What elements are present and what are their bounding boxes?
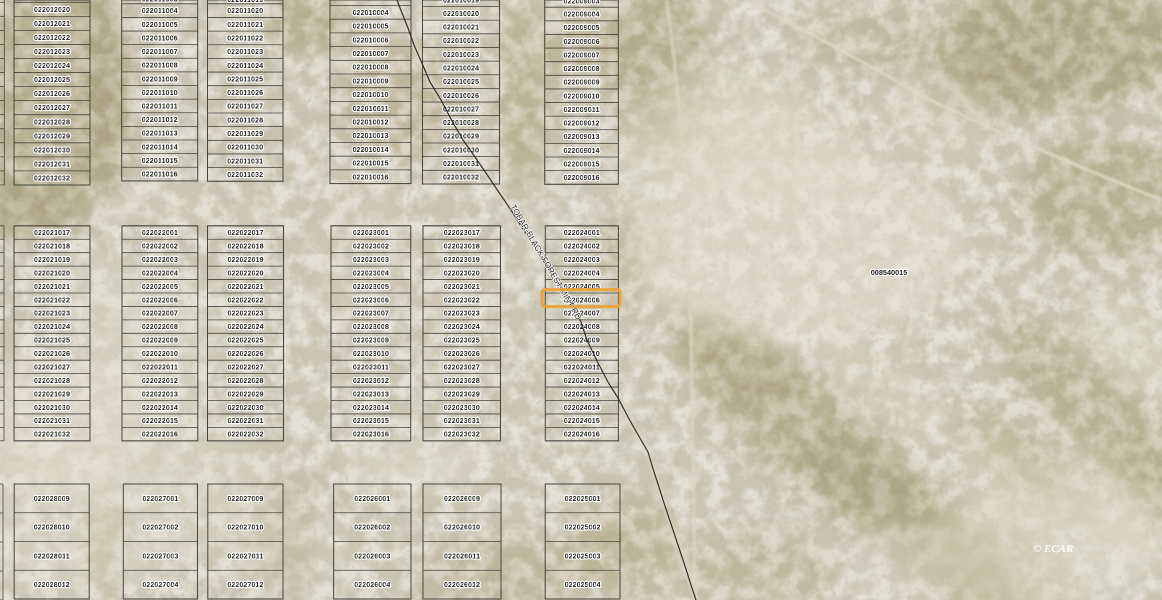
svg-text:022028012: 022028012 xyxy=(34,580,70,589)
svg-text:022026012: 022026012 xyxy=(444,580,480,589)
svg-text:022011032: 022011032 xyxy=(227,170,263,179)
svg-text:022027003: 022027003 xyxy=(142,551,178,560)
svg-text:022011015: 022011015 xyxy=(142,156,178,165)
svg-text:022021018: 022021018 xyxy=(34,242,70,251)
svg-text:022022028: 022022028 xyxy=(228,376,264,385)
svg-text:022023025: 022023025 xyxy=(444,336,480,345)
svg-text:022022022: 022022022 xyxy=(228,295,264,304)
svg-text:022021023: 022021023 xyxy=(34,309,70,318)
svg-text:022021025: 022021025 xyxy=(34,336,70,345)
svg-text:022023017: 022023017 xyxy=(444,228,480,237)
svg-text:022022002: 022022002 xyxy=(142,242,178,251)
svg-text:022009003: 022009003 xyxy=(564,0,600,5)
svg-text:022010027: 022010027 xyxy=(443,104,479,113)
svg-text:022022007: 022022007 xyxy=(142,309,178,318)
svg-text:022022011: 022022011 xyxy=(142,362,178,371)
svg-text:022027002: 022027002 xyxy=(142,523,178,532)
svg-text:022025002: 022025002 xyxy=(565,523,601,532)
svg-text:022010005: 022010005 xyxy=(353,22,389,31)
svg-text:022025001: 022025001 xyxy=(565,494,601,503)
svg-text:022023008: 022023008 xyxy=(353,322,389,331)
svg-text:022023006: 022023006 xyxy=(353,295,389,304)
svg-text:022012031: 022012031 xyxy=(34,159,70,168)
svg-text:022022013: 022022013 xyxy=(142,389,178,398)
svg-text:022011020: 022011020 xyxy=(227,6,263,15)
svg-text:022023002: 022023002 xyxy=(353,242,389,251)
svg-text:022012025: 022012025 xyxy=(34,75,70,84)
svg-text:022023015: 022023015 xyxy=(353,416,389,425)
svg-text:022027010: 022027010 xyxy=(227,523,263,532)
svg-text:022009009: 022009009 xyxy=(564,78,600,87)
svg-text:022011029: 022011029 xyxy=(227,129,263,138)
svg-text:022022016: 022022016 xyxy=(142,430,178,439)
svg-text:022012024: 022012024 xyxy=(34,61,71,70)
svg-text:022021019: 022021019 xyxy=(34,255,70,264)
svg-text:022010028: 022010028 xyxy=(443,118,479,127)
svg-text:008540015: 008540015 xyxy=(871,268,908,277)
svg-text:022010011: 022010011 xyxy=(353,104,389,113)
svg-text:022010023: 022010023 xyxy=(443,50,479,59)
svg-text:022021032: 022021032 xyxy=(34,430,70,439)
svg-text:022024011: 022024011 xyxy=(564,362,600,371)
svg-text:022022005: 022022005 xyxy=(142,282,178,291)
svg-text:022010013: 022010013 xyxy=(353,131,389,140)
svg-text:022023031: 022023031 xyxy=(444,416,480,425)
svg-text:022010014: 022010014 xyxy=(353,145,390,154)
svg-text:022023010: 022023010 xyxy=(353,349,389,358)
svg-text:022023004: 022023004 xyxy=(353,268,390,277)
svg-text:022010021: 022010021 xyxy=(443,23,479,32)
svg-text:022023016: 022023016 xyxy=(353,430,389,439)
svg-text:022023021: 022023021 xyxy=(444,282,480,291)
svg-text:022022027: 022022027 xyxy=(228,362,264,371)
svg-text:022027011: 022027011 xyxy=(227,551,263,560)
svg-text:022022012: 022022012 xyxy=(142,376,178,385)
svg-text:022024012: 022024012 xyxy=(564,376,600,385)
svg-text:022009013: 022009013 xyxy=(564,132,600,141)
svg-text:022022018: 022022018 xyxy=(228,242,264,251)
svg-text:022022030: 022022030 xyxy=(228,403,264,412)
svg-text:022011005: 022011005 xyxy=(142,20,178,29)
svg-text:022011030: 022011030 xyxy=(227,143,263,152)
svg-text:022012020: 022012020 xyxy=(34,5,70,14)
svg-text:022011004: 022011004 xyxy=(142,6,179,15)
svg-text:022026002: 022026002 xyxy=(354,523,390,532)
svg-text:022021017: 022021017 xyxy=(34,228,70,237)
svg-text:022010012: 022010012 xyxy=(353,118,389,127)
svg-text:022022001: 022022001 xyxy=(142,228,178,237)
svg-text:022023014: 022023014 xyxy=(353,403,390,412)
svg-text:022011012: 022011012 xyxy=(142,115,178,124)
svg-text:022010020: 022010020 xyxy=(443,9,479,18)
svg-text:022023003: 022023003 xyxy=(353,255,389,264)
svg-text:022023028: 022023028 xyxy=(444,376,480,385)
svg-text:022024002: 022024002 xyxy=(564,242,600,251)
svg-text:022023030: 022023030 xyxy=(444,403,480,412)
svg-text:022027012: 022027012 xyxy=(227,580,263,589)
svg-text:022011022: 022011022 xyxy=(227,33,263,42)
svg-text:022026004: 022026004 xyxy=(354,580,391,589)
svg-text:022022026: 022022026 xyxy=(228,349,264,358)
svg-text:022009008: 022009008 xyxy=(564,64,600,73)
svg-text:022024016: 022024016 xyxy=(564,430,600,439)
svg-text:022021029: 022021029 xyxy=(34,389,70,398)
svg-text:022023022: 022023022 xyxy=(444,295,480,304)
svg-text:022021027: 022021027 xyxy=(34,362,70,371)
svg-text:022024001: 022024001 xyxy=(564,228,600,237)
svg-text:022024015: 022024015 xyxy=(564,416,600,425)
svg-text:022024004: 022024004 xyxy=(564,268,601,277)
svg-text:022011026: 022011026 xyxy=(227,88,263,97)
svg-text:022011006: 022011006 xyxy=(142,33,178,42)
svg-text:022012032: 022012032 xyxy=(34,173,70,182)
svg-text:022023007: 022023007 xyxy=(353,309,389,318)
svg-text:022012021: 022012021 xyxy=(34,19,70,28)
svg-text:022021021: 022021021 xyxy=(34,282,70,291)
svg-text:022021031: 022021031 xyxy=(34,416,70,425)
svg-text:022023032: 022023032 xyxy=(444,430,480,439)
svg-text:022023019: 022023019 xyxy=(444,255,480,264)
svg-text:022011003: 022011003 xyxy=(142,0,178,4)
svg-text:022023011: 022023011 xyxy=(353,362,389,371)
svg-text:022012027: 022012027 xyxy=(34,103,70,112)
svg-text:022021020: 022021020 xyxy=(34,268,70,277)
svg-text:022011031: 022011031 xyxy=(227,156,263,165)
svg-text:022011016: 022011016 xyxy=(142,170,178,179)
svg-text:022009004: 022009004 xyxy=(564,10,601,19)
svg-text:022011013: 022011013 xyxy=(142,129,178,138)
svg-text:022022019: 022022019 xyxy=(228,255,264,264)
svg-text:022010025: 022010025 xyxy=(443,77,479,86)
svg-text:022009006: 022009006 xyxy=(564,37,600,46)
svg-text:022012028: 022012028 xyxy=(34,117,70,126)
svg-text:022010016: 022010016 xyxy=(353,172,389,181)
svg-text:022010009: 022010009 xyxy=(353,76,389,85)
svg-text:022027009: 022027009 xyxy=(227,494,263,503)
svg-text:022023027: 022023027 xyxy=(444,362,480,371)
svg-text:022010019: 022010019 xyxy=(443,0,479,5)
svg-text:022023001: 022023001 xyxy=(353,228,389,237)
svg-text:022022021: 022022021 xyxy=(228,282,264,291)
svg-text:022011023: 022011023 xyxy=(227,47,263,56)
svg-text:022010010: 022010010 xyxy=(353,90,389,99)
svg-text:022009015: 022009015 xyxy=(564,159,600,168)
svg-text:022022015: 022022015 xyxy=(142,416,178,425)
svg-text:022024014: 022024014 xyxy=(564,403,601,412)
svg-text:022021026: 022021026 xyxy=(34,349,70,358)
svg-text:022021022: 022021022 xyxy=(34,295,70,304)
svg-text:022022003: 022022003 xyxy=(142,255,178,264)
svg-text:022022004: 022022004 xyxy=(142,268,179,277)
svg-text:022022023: 022022023 xyxy=(228,309,264,318)
svg-text:022022008: 022022008 xyxy=(142,322,178,331)
svg-text:022027001: 022027001 xyxy=(142,494,178,503)
svg-text:022022006: 022022006 xyxy=(142,295,178,304)
svg-text:022012030: 022012030 xyxy=(34,145,70,154)
svg-text:022009005: 022009005 xyxy=(564,23,600,32)
svg-text:022010006: 022010006 xyxy=(353,35,389,44)
svg-text:022011027: 022011027 xyxy=(227,102,263,111)
svg-text:022023023: 022023023 xyxy=(444,309,480,318)
svg-text:022023018: 022023018 xyxy=(444,242,480,251)
svg-text:022022010: 022022010 xyxy=(142,349,178,358)
svg-text:022010007: 022010007 xyxy=(353,49,389,58)
svg-text:022011009: 022011009 xyxy=(142,74,178,83)
svg-text:022022025: 022022025 xyxy=(228,336,264,345)
svg-text:© ECAR: © ECAR xyxy=(1033,543,1073,555)
svg-text:022012023: 022012023 xyxy=(34,47,70,56)
svg-text:022026010: 022026010 xyxy=(444,523,480,532)
svg-text:022024013: 022024013 xyxy=(564,389,600,398)
svg-text:022027004: 022027004 xyxy=(142,580,179,589)
svg-text:022012022: 022012022 xyxy=(34,33,70,42)
svg-text:022012029: 022012029 xyxy=(34,131,70,140)
svg-text:022024009: 022024009 xyxy=(564,336,600,345)
svg-text:022010015: 022010015 xyxy=(353,159,389,168)
svg-text:022022020: 022022020 xyxy=(228,268,264,277)
svg-text:022012026: 022012026 xyxy=(34,89,70,98)
svg-text:022023024: 022023024 xyxy=(444,322,481,331)
svg-text:022011021: 022011021 xyxy=(227,20,263,29)
svg-text:022009016: 022009016 xyxy=(564,173,600,182)
svg-text:022021030: 022021030 xyxy=(34,403,70,412)
svg-text:022021024: 022021024 xyxy=(34,322,71,331)
svg-text:022023009: 022023009 xyxy=(353,336,389,345)
svg-text:022009011: 022009011 xyxy=(564,105,600,114)
svg-text:022024003: 022024003 xyxy=(564,255,600,264)
svg-text:022009012: 022009012 xyxy=(564,119,600,128)
svg-text:022026011: 022026011 xyxy=(444,551,480,560)
svg-text:022023029: 022023029 xyxy=(444,389,480,398)
svg-text:022028011: 022028011 xyxy=(34,551,70,560)
svg-text:022009014: 022009014 xyxy=(564,146,601,155)
svg-text:022011008: 022011008 xyxy=(142,61,178,70)
svg-text:022028009: 022028009 xyxy=(34,494,70,503)
svg-text:022022024: 022022024 xyxy=(228,322,265,331)
svg-text:022022031: 022022031 xyxy=(228,416,264,425)
svg-text:022022029: 022022029 xyxy=(228,389,264,398)
svg-text:022023020: 022023020 xyxy=(444,268,480,277)
svg-text:022009007: 022009007 xyxy=(564,50,600,59)
svg-text:022021028: 022021028 xyxy=(34,376,70,385)
svg-text:022023012: 022023012 xyxy=(353,376,389,385)
svg-text:022011019: 022011019 xyxy=(227,0,263,4)
svg-text:022022032: 022022032 xyxy=(228,430,264,439)
svg-text:022023013: 022023013 xyxy=(353,389,389,398)
svg-text:022011028: 022011028 xyxy=(227,115,263,124)
svg-text:022022014: 022022014 xyxy=(142,403,179,412)
svg-text:022023005: 022023005 xyxy=(353,282,389,291)
svg-text:022028010: 022028010 xyxy=(34,523,70,532)
svg-text:022010004: 022010004 xyxy=(353,8,390,17)
svg-text:022010030: 022010030 xyxy=(443,145,479,154)
svg-text:022023026: 022023026 xyxy=(444,349,480,358)
svg-text:022010024: 022010024 xyxy=(443,63,480,72)
svg-text:022010022: 022010022 xyxy=(443,36,479,45)
svg-text:022010008: 022010008 xyxy=(353,63,389,72)
svg-text:022022017: 022022017 xyxy=(228,228,264,237)
svg-text:022010031: 022010031 xyxy=(443,159,479,168)
svg-text:022011014: 022011014 xyxy=(142,142,179,151)
svg-text:022009010: 022009010 xyxy=(564,91,600,100)
svg-text:022026003: 022026003 xyxy=(354,551,390,560)
svg-text:022025004: 022025004 xyxy=(565,580,602,589)
svg-text:022011007: 022011007 xyxy=(142,47,178,56)
svg-text:022010026: 022010026 xyxy=(443,91,479,100)
svg-text:022011024: 022011024 xyxy=(227,61,264,70)
svg-text:022026001: 022026001 xyxy=(354,494,390,503)
svg-text:022011025: 022011025 xyxy=(227,74,263,83)
svg-text:022025003: 022025003 xyxy=(565,551,601,560)
svg-text:022022009: 022022009 xyxy=(142,336,178,345)
svg-text:022011011: 022011011 xyxy=(142,102,178,111)
svg-text:022026009: 022026009 xyxy=(444,494,480,503)
svg-text:022011010: 022011010 xyxy=(142,88,178,97)
svg-text:022010032: 022010032 xyxy=(443,173,479,182)
